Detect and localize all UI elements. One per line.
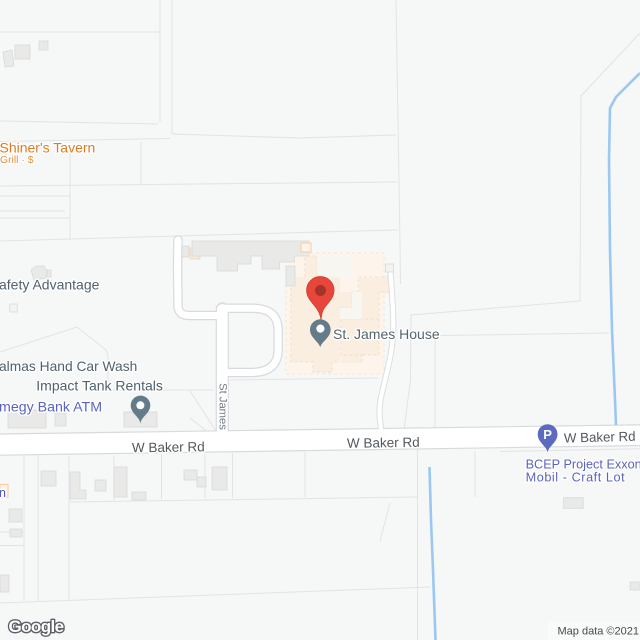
svg-text:Shiner's Tavern: Shiner's Tavern — [0, 140, 95, 156]
svg-text:Google: Google — [9, 617, 64, 636]
svg-text:almas Hand Car Wash: almas Hand Car Wash — [0, 359, 137, 374]
svg-text:Grill · $: Grill · $ — [0, 155, 34, 166]
svg-text:St. James House: St. James House — [333, 326, 440, 342]
svg-text:Impact Tank Rentals: Impact Tank Rentals — [36, 378, 163, 394]
svg-text:BCEP Project Exxon: BCEP Project Exxon — [526, 457, 640, 471]
svg-text:megy Bank ATM: megy Bank ATM — [0, 400, 102, 416]
svg-text:Map data ©2021: Map data ©2021 — [558, 625, 640, 637]
svg-text:W Baker Rd: W Baker Rd — [347, 435, 420, 451]
svg-text:Mobil - Craft Lot: Mobil - Craft Lot — [526, 471, 626, 485]
svg-text:W Baker Rd: W Baker Rd — [564, 429, 636, 446]
svg-text:afety Advantage: afety Advantage — [0, 277, 100, 293]
svg-text:P: P — [543, 427, 552, 442]
svg-text:St James: St James — [217, 383, 229, 430]
svg-text:n: n — [0, 486, 6, 500]
svg-text:W Baker Rd: W Baker Rd — [132, 439, 205, 455]
